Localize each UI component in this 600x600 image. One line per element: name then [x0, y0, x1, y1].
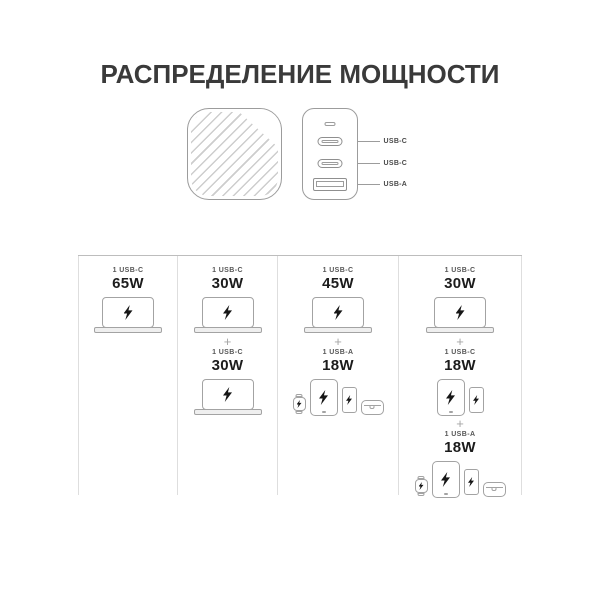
- port-count-label: 1 USB-C: [445, 349, 476, 357]
- laptop-icon: [102, 297, 154, 328]
- usb-c-port-icon: [317, 159, 342, 168]
- plus-sign: +: [224, 336, 232, 348]
- lightning-bolt-icon: [468, 477, 474, 487]
- wattage-label: 65W: [112, 276, 144, 291]
- laptop-icon: [202, 379, 254, 410]
- power-column-2: 1 USB-C 30W + 1 USB-C 30W: [177, 256, 277, 495]
- watch-icon: [293, 397, 306, 411]
- charger-side-view: USB-C USB-C USB-A: [302, 108, 414, 201]
- power-group: 1 USB-C 30W: [202, 349, 254, 416]
- led-indicator-icon: [324, 122, 335, 126]
- device-icons: [434, 297, 486, 334]
- earbuds-icon: [361, 400, 384, 415]
- port-count-label: 1 USB-A: [323, 349, 354, 357]
- power-group: 1 USB-C 30W: [202, 267, 254, 334]
- tablet-icon: [310, 379, 338, 416]
- port-label: USB-C: [384, 138, 408, 145]
- port-count-label: 1 USB-C: [212, 349, 243, 357]
- phone-icon: [342, 387, 357, 413]
- power-group: 1 USB-A 18W: [415, 431, 506, 498]
- port-label: USB-A: [384, 181, 408, 188]
- wattage-label: 18W: [444, 440, 476, 455]
- wattage-label: 30W: [212, 358, 244, 373]
- power-group: 1 USB-C 65W: [102, 267, 154, 334]
- power-group: 1 USB-A 18W: [293, 349, 384, 416]
- laptop-icon: [434, 297, 486, 328]
- port-count-label: 1 USB-C: [323, 267, 354, 275]
- lightning-bolt-icon: [473, 395, 479, 405]
- callout-line: [358, 163, 380, 164]
- earbuds-icon: [483, 482, 506, 497]
- charger-front-view: [187, 108, 282, 200]
- device-icons: [312, 297, 364, 334]
- port-callout: USB-C: [358, 137, 408, 146]
- port-label: USB-C: [384, 160, 408, 167]
- tablet-icon: [432, 461, 460, 498]
- wattage-label: 45W: [322, 276, 354, 291]
- plus-sign: +: [456, 336, 464, 348]
- power-column-3: 1 USB-C 45W + 1 USB-A 18W: [277, 256, 398, 495]
- plus-sign: +: [334, 336, 342, 348]
- port-count-label: 1 USB-C: [113, 267, 144, 275]
- wattage-label: 18W: [322, 358, 354, 373]
- laptop-icon: [312, 297, 364, 328]
- usb-c-port-icon: [317, 137, 342, 146]
- watch-icon: [415, 479, 428, 493]
- lightning-bolt-icon: [319, 390, 328, 405]
- device-icons: [202, 379, 254, 416]
- laptop-icon: [202, 297, 254, 328]
- lightning-bolt-icon: [297, 400, 302, 408]
- device-icons: [202, 297, 254, 334]
- lightning-bolt-icon: [419, 482, 424, 490]
- power-group: 1 USB-C 18W: [437, 349, 484, 416]
- usb-a-port-icon: [313, 178, 347, 191]
- wattage-label: 30W: [212, 276, 244, 291]
- lightning-bolt-icon: [346, 395, 352, 405]
- lightning-bolt-icon: [334, 305, 343, 320]
- page-title: РАСПРЕДЕЛЕНИЕ МОЩНОСТИ: [0, 59, 600, 90]
- wattage-label: 18W: [444, 358, 476, 373]
- power-group: 1 USB-C 45W: [312, 267, 364, 334]
- device-icons: [437, 379, 484, 416]
- lightning-bolt-icon: [223, 387, 232, 402]
- port-count-label: 1 USB-C: [212, 267, 243, 275]
- charger-body: [302, 108, 358, 200]
- port-count-label: 1 USB-A: [445, 431, 476, 439]
- lightning-bolt-icon: [124, 305, 133, 320]
- lightning-bolt-icon: [456, 305, 465, 320]
- callout-line: [358, 141, 380, 142]
- plus-sign: +: [456, 418, 464, 430]
- phone-icon: [469, 387, 484, 413]
- tablet-icon: [437, 379, 465, 416]
- power-group: 1 USB-C 30W: [434, 267, 486, 334]
- power-column-1: 1 USB-C 65W: [78, 256, 177, 495]
- device-icons: [293, 379, 384, 416]
- device-icons: [102, 297, 154, 334]
- power-distribution-table: 1 USB-C 65W 1 USB-C 30W + 1 USB-C 30W 1 …: [78, 255, 522, 495]
- power-column-4: 1 USB-C 30W + 1 USB-C 18W + 1 USB-A 18W: [398, 256, 522, 495]
- charger-illustration: USB-C USB-C USB-A: [0, 108, 600, 201]
- lightning-bolt-icon: [446, 390, 455, 405]
- callout-line: [358, 184, 380, 185]
- port-callout: USB-C: [358, 159, 408, 168]
- phone-icon: [464, 469, 479, 495]
- port-callout: USB-A: [358, 180, 408, 189]
- lightning-bolt-icon: [441, 472, 450, 487]
- lightning-bolt-icon: [223, 305, 232, 320]
- wattage-label: 30W: [444, 276, 476, 291]
- port-count-label: 1 USB-C: [445, 267, 476, 275]
- device-icons: [415, 461, 506, 498]
